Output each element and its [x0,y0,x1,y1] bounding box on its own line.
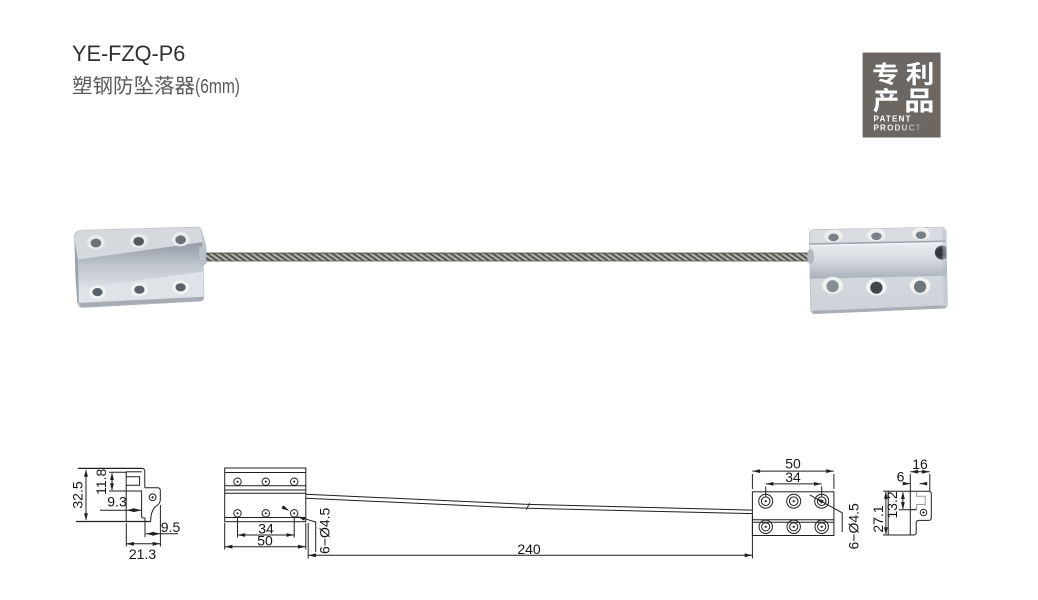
svg-text:27.1: 27.1 [870,505,886,532]
svg-text:6−Ø4.5: 6−Ø4.5 [846,503,862,550]
svg-text:21.3: 21.3 [129,546,156,562]
svg-text:34: 34 [785,469,801,485]
svg-text:9.5: 9.5 [161,519,181,535]
svg-text:6−Ø4.5: 6−Ø4.5 [317,507,333,554]
svg-text:50: 50 [257,533,273,549]
svg-text:240: 240 [517,541,541,557]
svg-text:32.5: 32.5 [69,481,85,508]
svg-text:9.3: 9.3 [107,493,127,509]
svg-text:16: 16 [912,456,928,472]
svg-text:6: 6 [897,468,905,484]
svg-text:11.8: 11.8 [93,468,109,494]
